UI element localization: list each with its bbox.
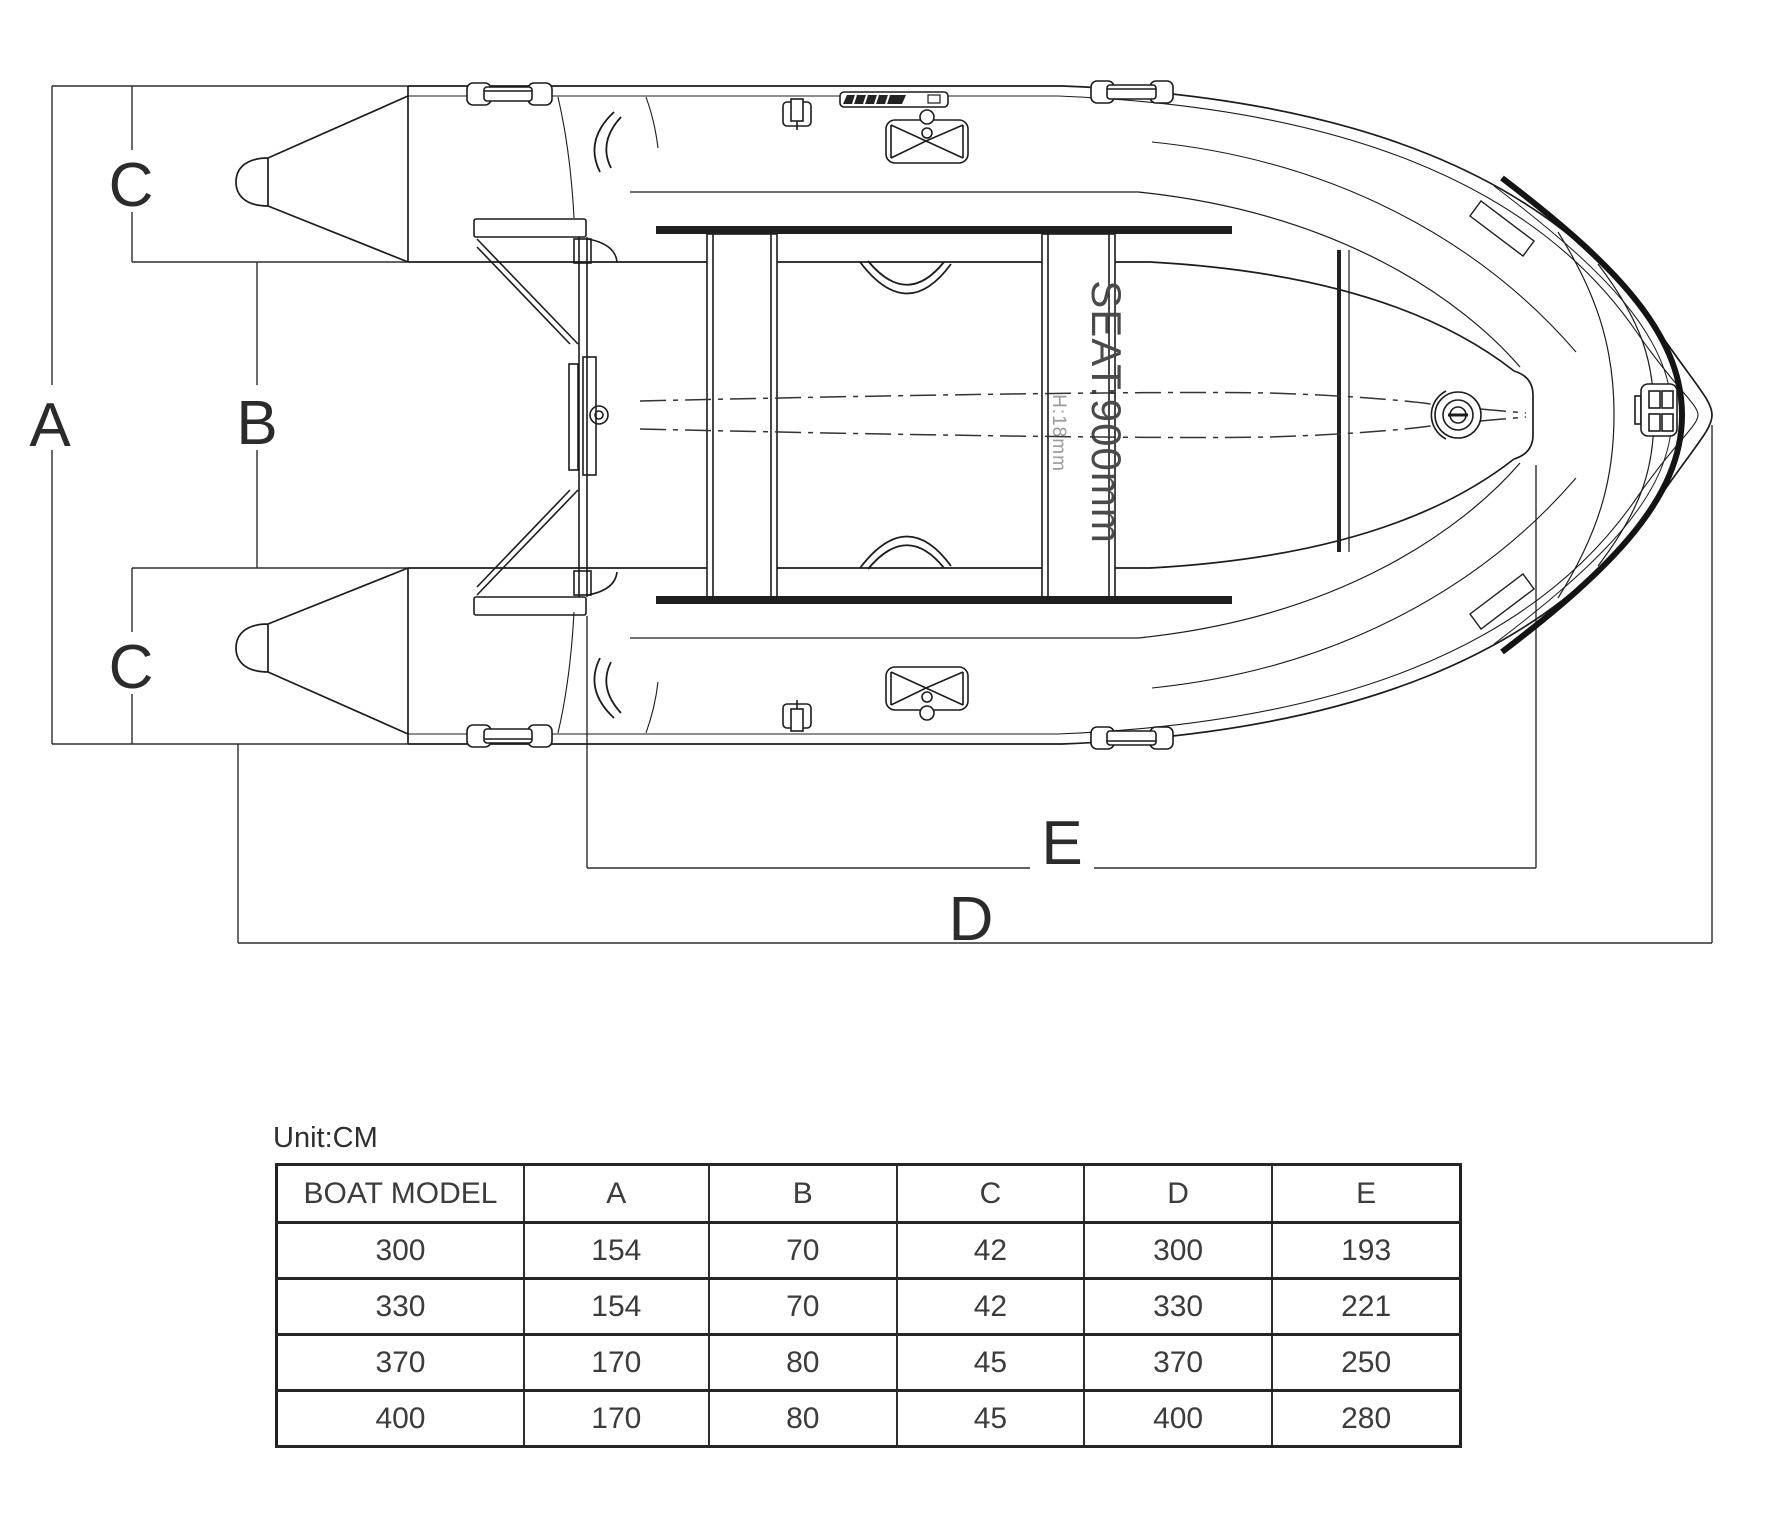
cell-b: 70 <box>709 1223 897 1279</box>
stern-cone-top <box>236 86 408 262</box>
col-header-boat-model: BOAT MODEL <box>277 1165 524 1223</box>
label-E: E <box>1041 809 1082 878</box>
brand-plate <box>840 92 948 107</box>
col-header-c: C <box>897 1165 1084 1223</box>
valve-bottom <box>783 700 811 731</box>
hdl-bar <box>1107 731 1156 745</box>
motor-pad <box>569 364 578 470</box>
oarlock-bottom <box>886 667 968 720</box>
col-header-b: B <box>709 1165 897 1223</box>
hdl-bar <box>484 729 532 743</box>
oarlock-bottom-pin2 <box>922 692 932 702</box>
valve-top-cap <box>791 99 803 121</box>
seat-left <box>707 234 777 598</box>
table-header-row: BOAT MODEL A B C D E <box>277 1165 1461 1223</box>
cell-a: 154 <box>524 1279 709 1335</box>
hdl-bar <box>1107 85 1156 99</box>
cell-c: 42 <box>897 1223 1084 1279</box>
oarlock-top-pin <box>920 110 934 124</box>
cell-d: 400 <box>1084 1391 1272 1447</box>
bow-seam-1 <box>1558 232 1614 598</box>
oar-line-tip-bottom <box>1480 417 1526 421</box>
valve-top <box>783 99 811 130</box>
oarlock-top <box>886 110 968 163</box>
clamp-knob <box>590 406 608 424</box>
cell-c: 45 <box>897 1391 1084 1447</box>
oarlock-bottom-pin <box>920 706 934 720</box>
towing-ring <box>1431 391 1481 439</box>
dimension-lines <box>52 86 1712 943</box>
bow-handle <box>1635 384 1677 436</box>
cockpit-bow-face <box>1514 371 1533 459</box>
cell-d: 330 <box>1084 1279 1272 1335</box>
seat-height-annotation: H:18mm <box>1048 394 1069 472</box>
carry-handle-bottom-right <box>1091 727 1173 749</box>
cell-e: 221 <box>1272 1279 1460 1335</box>
oarlock-top-pin2 <box>922 128 932 138</box>
bow-handle-tab <box>1635 396 1641 424</box>
label-B: B <box>236 389 277 458</box>
dim-A-lines <box>52 86 408 744</box>
col-header-a: A <box>524 1165 709 1223</box>
hull-tubes <box>236 86 1712 744</box>
transom-hinge-top <box>574 239 591 263</box>
grab-handle-mid-bottom <box>860 536 951 569</box>
cockpit-inner-top <box>408 262 1514 371</box>
col-header-e: E <box>1272 1165 1460 1223</box>
carry-handle-top-left <box>467 83 552 105</box>
tube-bend-contour-bottom <box>1152 478 1576 688</box>
cell-b: 70 <box>709 1279 897 1335</box>
hdl-bar <box>484 87 532 101</box>
carry-handle-top-right <box>1091 81 1173 103</box>
tube-bend-contour-top <box>1152 142 1576 352</box>
cell-a: 154 <box>524 1223 709 1279</box>
table-row: 400 170 80 45 400 280 <box>277 1391 1461 1447</box>
grab-handle-stern-bottom <box>594 658 621 718</box>
table-row: 330 154 70 42 330 221 <box>277 1279 1461 1335</box>
stern-cone-bottom <box>236 568 408 744</box>
transom-brace-top <box>477 239 578 344</box>
cell-c: 42 <box>897 1279 1084 1335</box>
cell-model: 400 <box>277 1391 524 1447</box>
cockpit-inner-bottom <box>408 459 1514 568</box>
label-C-bottom: C <box>109 633 154 702</box>
cell-d: 370 <box>1084 1335 1272 1391</box>
boat-dimension-sheet: A B C C D E <box>0 0 1780 1524</box>
cell-model: 300 <box>277 1223 524 1279</box>
seat-rail-bottom <box>656 596 1232 604</box>
dim-D-lines <box>238 425 1712 943</box>
table-row: 370 170 80 45 370 250 <box>277 1335 1461 1391</box>
cell-e: 250 <box>1272 1335 1460 1391</box>
cell-a: 170 <box>524 1391 709 1447</box>
col-header-d: D <box>1084 1165 1272 1223</box>
label-C-top: C <box>109 151 154 220</box>
cell-model: 370 <box>277 1335 524 1391</box>
table-row: 300 154 70 42 300 193 <box>277 1223 1461 1279</box>
cell-b: 80 <box>709 1335 897 1391</box>
dimension-spec-table: BOAT MODEL A B C D E 300 154 70 42 300 1… <box>275 1163 1462 1448</box>
grab-handle-mid-top <box>860 261 951 294</box>
valve-bottom-cap <box>791 709 803 731</box>
label-A: A <box>29 391 71 460</box>
unit-label: Unit:CM <box>273 1122 378 1155</box>
cell-model: 330 <box>277 1279 524 1335</box>
cell-e: 280 <box>1272 1391 1460 1447</box>
dim-C-bottom-lines <box>132 568 408 744</box>
transom-plate-top <box>474 219 586 237</box>
transom-hinge-bottom <box>574 571 591 595</box>
seat-annotation: SEAT:900mm <box>1083 280 1130 544</box>
transom-brace-bottom <box>477 490 578 595</box>
transom <box>474 219 617 615</box>
oar-line-tip-top <box>1480 409 1526 413</box>
cell-a: 170 <box>524 1335 709 1391</box>
cell-c: 45 <box>897 1335 1084 1391</box>
dim-C-top-lines <box>132 86 408 262</box>
seat-rail-top <box>656 226 1232 234</box>
cell-b: 80 <box>709 1391 897 1447</box>
transom-plate-bottom <box>474 597 586 615</box>
cell-e: 193 <box>1272 1223 1460 1279</box>
label-D: D <box>949 885 994 954</box>
cell-d: 300 <box>1084 1223 1272 1279</box>
grab-handle-stern-top <box>594 112 621 172</box>
carry-handle-bottom-left <box>467 725 552 747</box>
